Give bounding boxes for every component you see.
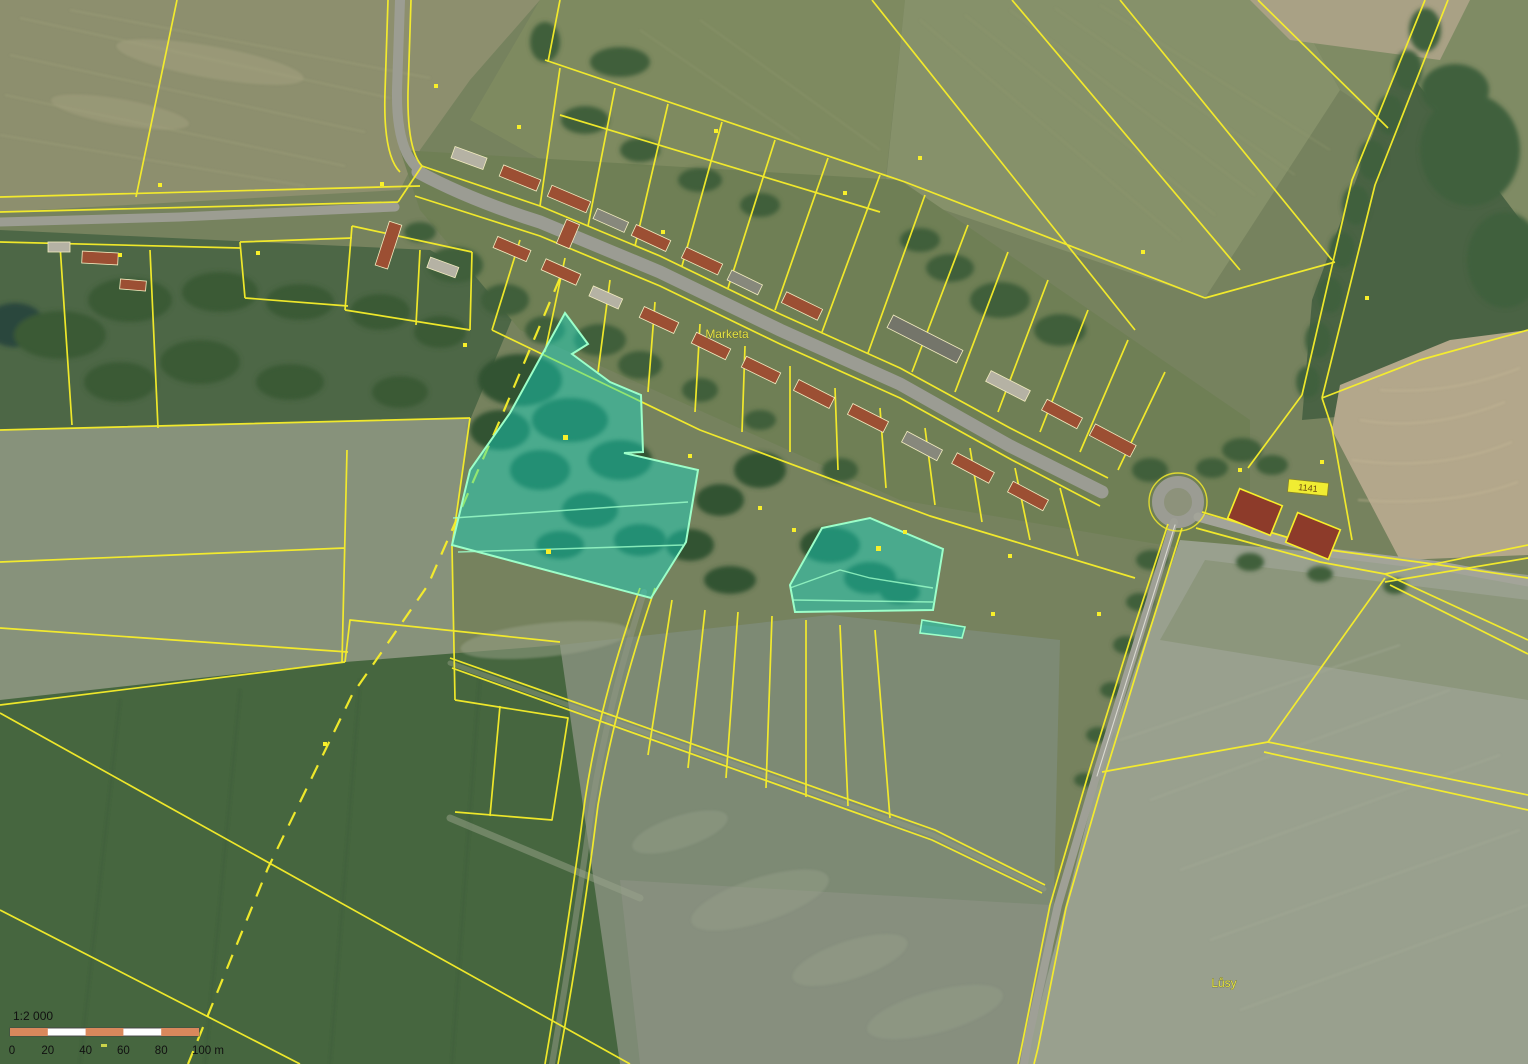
scale-bar-segments — [10, 1028, 199, 1036]
scale-tick: 40 — [79, 1045, 92, 1057]
scale-tick: 0 — [9, 1045, 15, 1057]
map-viewport[interactable]: Marketa Lůsy 1141 1:2 000 0 20 40 60 80 … — [0, 0, 1528, 1064]
roundabout — [1158, 482, 1198, 522]
building-label-text: 1141 — [1298, 482, 1318, 494]
scale-tick: 20 — [41, 1045, 54, 1057]
scale-tick: 80 — [155, 1045, 168, 1057]
place-label-village: Marketa — [705, 327, 749, 341]
scale-bar-ticks: 0 20 40 60 80 100 m — [9, 1045, 224, 1057]
place-label-field: Lůsy — [1211, 976, 1236, 990]
scale-ratio-label: 1:2 000 — [13, 1009, 53, 1023]
scale-tick: 60 — [117, 1045, 130, 1057]
scale-tick: 100 m — [192, 1045, 224, 1057]
map-canvas[interactable]: Marketa Lůsy 1141 1:2 000 0 20 40 60 80 … — [0, 0, 1528, 1064]
